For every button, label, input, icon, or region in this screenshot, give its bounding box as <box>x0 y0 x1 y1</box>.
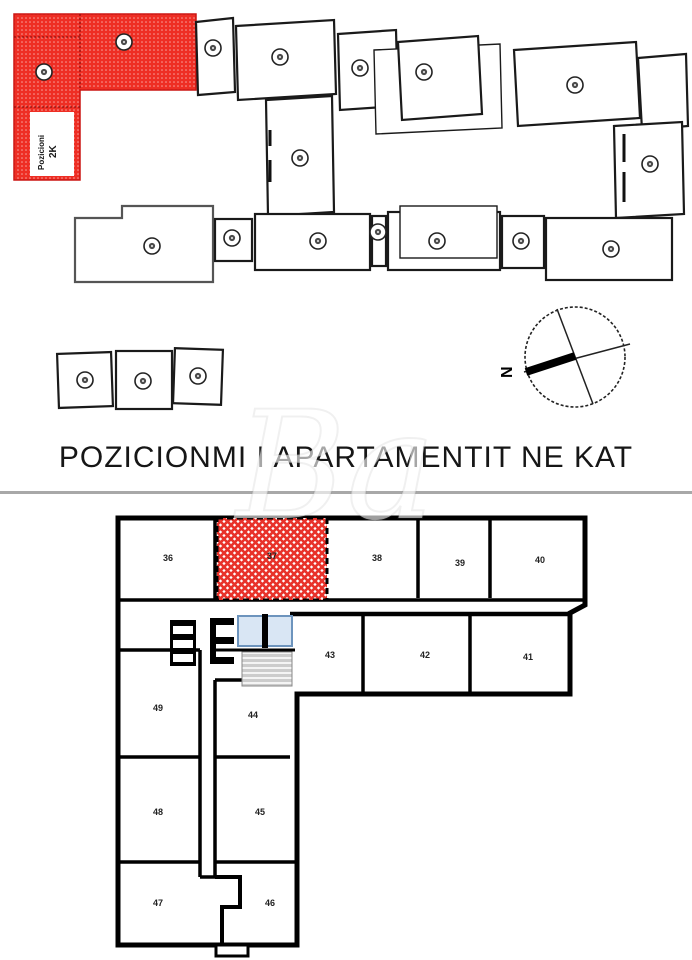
room-number: 45 <box>255 807 265 817</box>
unit-marker-icon <box>429 233 445 249</box>
unit-marker-icon <box>144 238 160 254</box>
site-plan: Pozicioni 2K <box>0 0 692 430</box>
unit-marker-icon <box>224 230 240 246</box>
unit-marker-icon <box>36 64 52 80</box>
unit-marker-icon <box>567 77 583 93</box>
building <box>398 36 482 120</box>
floor-outline <box>118 518 585 945</box>
stair-slot <box>173 640 193 648</box>
compass-north-letter: N <box>499 366 516 378</box>
wall-segment <box>216 657 234 664</box>
building <box>196 18 235 95</box>
unit-marker-icon <box>205 40 221 56</box>
room-number: 38 <box>372 553 382 563</box>
unit-marker-icon <box>272 49 288 65</box>
wall-segment <box>216 637 234 644</box>
room-number: 41 <box>523 652 533 662</box>
brochure-page: Pozicioni 2K <box>0 0 692 960</box>
room-number: 46 <box>265 898 275 908</box>
position-label-line2: 2K <box>48 144 59 158</box>
room-number: 42 <box>420 650 430 660</box>
room-number: 37 <box>267 551 277 561</box>
room-number: 36 <box>163 553 173 563</box>
entry-step <box>216 945 248 956</box>
floor-plan: 36 37 38 39 40 43 42 41 49 44 48 45 47 4… <box>0 497 692 960</box>
page-title: POZICIONMI I APARTAMENTIT NE KAT <box>0 441 692 475</box>
unit-marker-icon <box>642 156 658 172</box>
unit-marker-icon <box>513 233 529 249</box>
room-number: 44 <box>248 710 258 720</box>
wall-segment <box>262 614 268 648</box>
staircase <box>242 652 292 686</box>
position-label-line1: Pozicioni <box>37 135 46 170</box>
unit-marker-icon <box>310 233 326 249</box>
room-number: 47 <box>153 898 163 908</box>
stair-slot <box>173 626 193 634</box>
elevator-shaft <box>267 616 292 646</box>
building <box>638 54 688 130</box>
room-number: 49 <box>153 703 163 713</box>
room-number: 40 <box>535 555 545 565</box>
unit-marker-icon <box>190 368 206 384</box>
building <box>400 206 497 258</box>
unit-marker-icon <box>292 150 308 166</box>
unit-marker-icon <box>603 241 619 257</box>
unit-marker-icon <box>116 34 132 50</box>
unit-marker-icon <box>416 64 432 80</box>
wall-segment <box>210 618 216 664</box>
unit-marker-icon <box>370 224 386 240</box>
room-number: 39 <box>455 558 465 568</box>
wall-segment <box>216 618 234 625</box>
unit-marker-icon <box>77 372 93 388</box>
room-number: 43 <box>325 650 335 660</box>
elevator-shaft <box>238 616 263 646</box>
north-compass-icon: N <box>499 307 630 407</box>
unit-marker-icon <box>135 373 151 389</box>
stair-slot <box>173 654 193 662</box>
unit-marker-icon <box>352 60 368 76</box>
section-divider <box>0 491 692 494</box>
room-number: 48 <box>153 807 163 817</box>
